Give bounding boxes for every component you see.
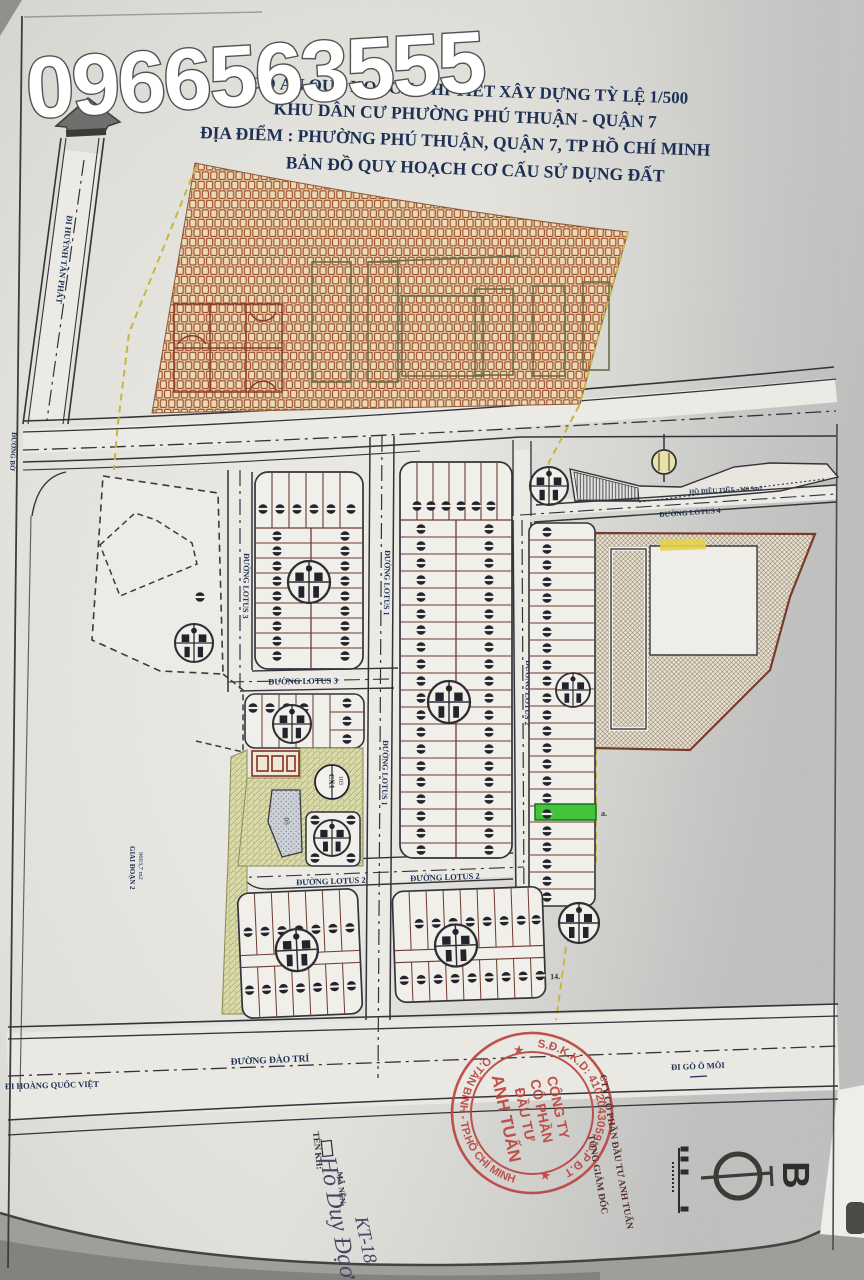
svg-text:ĐƯỜNG LOTUS 3: ĐƯỜNG LOTUS 3 bbox=[241, 553, 252, 619]
svg-text:ĐƯỜNG LOTUS 3: ĐƯỜNG LOTUS 3 bbox=[268, 675, 338, 686]
svg-text:14.: 14. bbox=[550, 972, 560, 981]
svg-text:GIAI ĐOẠN 2: GIAI ĐOẠN 2 bbox=[128, 846, 136, 890]
svg-text:ĐƯỜNG LOTUS 1: ĐƯỜNG LOTUS 1 bbox=[380, 740, 391, 806]
svg-text:CX1: CX1 bbox=[327, 774, 337, 789]
svg-text:9603,7 m2: 9603,7 m2 bbox=[137, 852, 144, 880]
svg-text:ĐƯỜNG LOTUS 1: ĐƯỜNG LOTUS 1 bbox=[382, 550, 393, 616]
svg-text:a.: a. bbox=[601, 809, 607, 818]
svg-text:103: 103 bbox=[337, 776, 343, 785]
svg-text:B: B bbox=[774, 1161, 816, 1188]
